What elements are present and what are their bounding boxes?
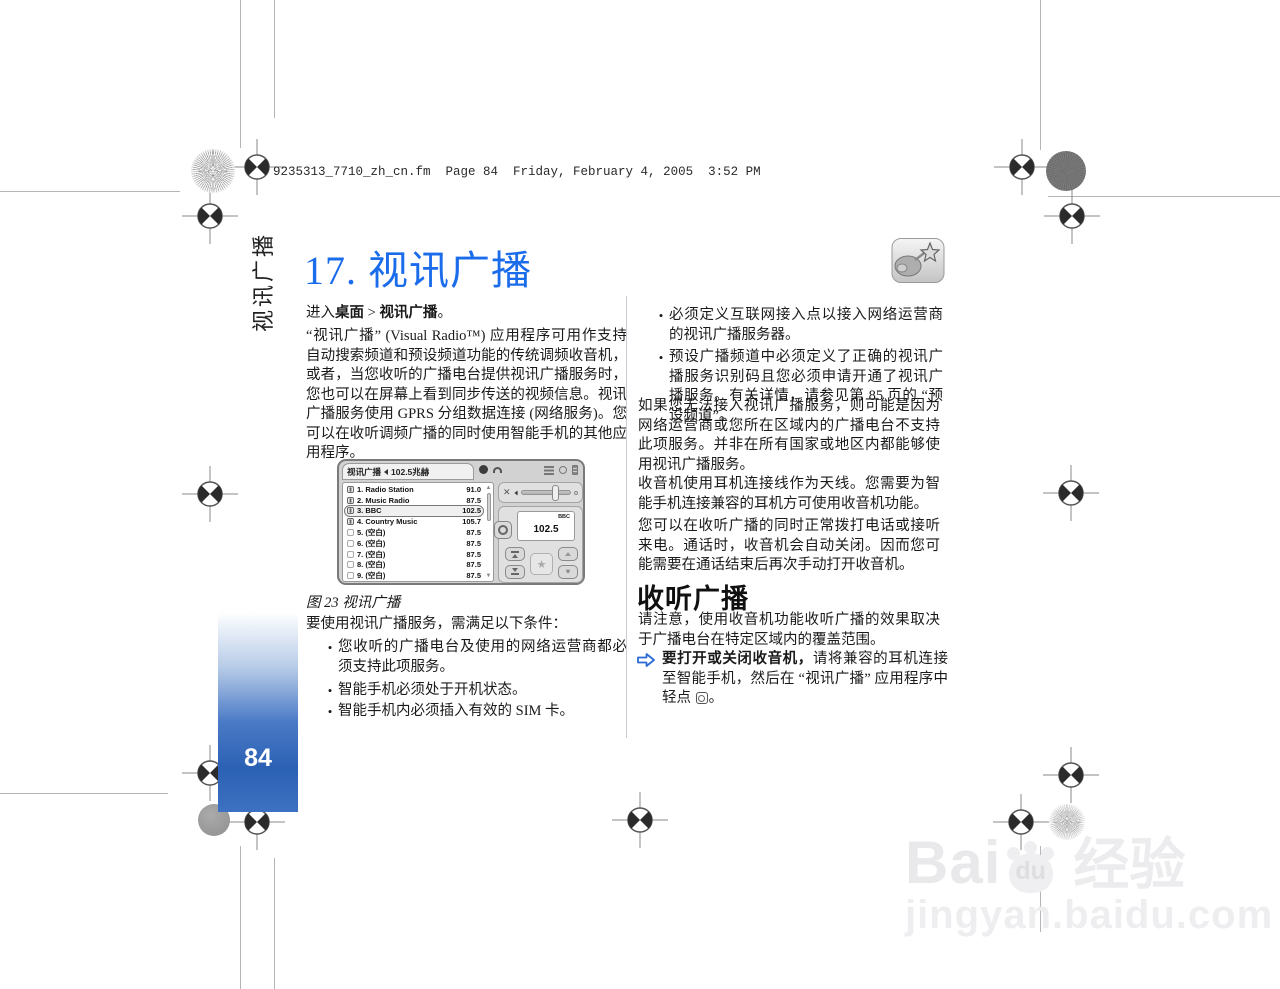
- station-label: 5. (空白): [357, 527, 455, 538]
- left-bullet-2: • 智能手机必须处于开机状态。: [322, 681, 627, 701]
- station-preset-box: [347, 518, 354, 525]
- station-freq: 87.5: [455, 539, 481, 548]
- equalizer-icon: [544, 466, 554, 475]
- station-preset-box: [347, 529, 354, 536]
- station-up-button-icon: [558, 547, 578, 561]
- station-label: 6. (空白): [357, 538, 455, 549]
- intro-prefix: 进入: [306, 305, 335, 321]
- station-row: 6. (空白) 87.5: [345, 538, 483, 549]
- station-label: 4. Country Music: [357, 517, 455, 526]
- station-label: 7. (空白): [357, 549, 455, 560]
- intro-suffix: 。: [437, 305, 452, 321]
- station-freq: 87.5: [455, 550, 481, 559]
- registration-dark-circle: [1046, 151, 1086, 191]
- radio-power-button-icon: [494, 521, 512, 539]
- note-suffix: 。: [709, 690, 724, 706]
- station-row: 1. Radio Station 91.0: [345, 484, 483, 495]
- station-freq: 91.0: [455, 485, 481, 494]
- phone-control-panel: ✕ BBC 102.5 ★: [498, 482, 583, 583]
- sidebar-blue-bar: 84: [218, 612, 298, 812]
- speaker-small-icon: [514, 490, 517, 495]
- crop-line: [0, 191, 180, 192]
- tuner-card: BBC 102.5 ★ ♥: [498, 506, 583, 583]
- intro-line: 进入桌面 > 视讯广播。: [306, 304, 626, 324]
- left-bullet-3: • 智能手机内必须插入有效的 SIM 卡。: [322, 702, 627, 722]
- station-preset-box: [347, 561, 354, 568]
- action-note: 要打开或关闭收音机，请将兼容的耳机连接至智能手机，然后在 “视讯广播” 应用程序…: [636, 650, 948, 709]
- mute-speaker-icon: ✕: [503, 488, 511, 497]
- station-row: 7. (空白) 87.5: [345, 549, 483, 560]
- station-preset-box: [347, 486, 354, 493]
- headphones-icon: [493, 467, 502, 473]
- crop-line: [274, 858, 275, 989]
- station-freq: 87.5: [455, 571, 481, 580]
- baidu-watermark: Bai du 经验: [905, 833, 1185, 893]
- station-row: 4. Country Music 105.7: [345, 516, 483, 527]
- watermark-jingyan-text: 经验: [1073, 837, 1185, 893]
- right-paragraph-3: 您可以在收听广播的同时正常拨打电话或接听来电。通话时，收音机会自动关闭。因而您可…: [638, 517, 940, 576]
- registration-crosshair: [1043, 747, 1099, 803]
- network-icon: [559, 466, 567, 474]
- watermark-baidu-text: Bai: [905, 833, 1001, 893]
- crop-line: [0, 793, 168, 794]
- bullet-marker: •: [322, 702, 338, 722]
- page-number: 84: [218, 744, 298, 773]
- bullet-text: 智能手机内必须插入有效的 SIM 卡。: [338, 702, 574, 722]
- display-frequency: 102.5: [518, 524, 574, 535]
- note-body: 要打开或关闭收音机，请将兼容的耳机连接至智能手机，然后在 “视讯广播” 应用程序…: [662, 650, 948, 709]
- station-row: 8. (空白) 87.5: [345, 560, 483, 571]
- station-row: 2. Music Radio 87.5: [345, 495, 483, 506]
- crop-line: [274, 0, 275, 118]
- volume-track: [521, 490, 571, 495]
- registration-crosshair: [182, 466, 238, 522]
- scroll-down-icon: ▼: [485, 573, 492, 579]
- visual-radio-chapter-icon: [891, 237, 945, 284]
- crop-line: [1040, 0, 1041, 150]
- station-freq: 105.7: [455, 517, 481, 526]
- registration-crosshair: [1044, 188, 1100, 244]
- list-scrollbar: ▲ ▼: [485, 485, 492, 579]
- frequency-display: BBC 102.5: [517, 511, 575, 541]
- station-label: 3. BBC: [357, 506, 455, 515]
- bullet-text: 您收听的广播电台及使用的网络运营商都必须支持此项服务。: [338, 638, 627, 677]
- phone-tab-icons: [479, 465, 502, 474]
- left-paragraph-1: “视讯广播” (Visual Radio™) 应用程序可用作支持自动搜索频道和预…: [306, 327, 627, 464]
- volume-thumb: [552, 485, 559, 501]
- document-header-line: 9235313_7710_zh_cn.fm Page 84 Friday, Fe…: [273, 165, 761, 179]
- station-label: 1. Radio Station: [357, 485, 455, 494]
- station-row: 3. BBC 102.5: [345, 506, 483, 517]
- bullet-marker: •: [322, 638, 338, 677]
- phone-app-title: 视讯广播: [347, 466, 381, 478]
- note-bold-text: 要打开或关闭收音机，: [662, 651, 813, 667]
- station-row: 9. (空白) 87.5: [345, 570, 483, 581]
- station-preset-box: [347, 497, 354, 504]
- bullet-marker: •: [653, 306, 669, 345]
- station-preset-box: [347, 572, 354, 579]
- action-arrow-icon: [636, 650, 662, 709]
- right-paragraph-2: 收音机使用耳机连接线作为天线。您需要为智能手机连接兼容的耳机方可使用收音机功能。: [638, 475, 940, 514]
- registration-crosshair: [994, 139, 1050, 195]
- save-favorite-button-icon: ♥: [558, 565, 578, 579]
- station-freq: 87.5: [455, 560, 481, 569]
- bullet-text: 智能手机必须处于开机状态。: [338, 681, 527, 701]
- scroll-up-icon: ▲: [485, 485, 492, 491]
- chapter-title: 17. 视讯广播: [304, 238, 532, 296]
- speaker-icon: [384, 469, 388, 475]
- visual-radio-star-button-icon: ★: [530, 553, 553, 575]
- baidu-paw-icon: du: [1005, 841, 1057, 893]
- sidebar-chapter-label: 视讯广播: [246, 212, 286, 352]
- scroll-thumb: [487, 493, 491, 521]
- registration-starburst-circle: [191, 149, 235, 193]
- visual-radio-screenshot: 视讯广播 102.5兆赫 1. Radio Station 91.0 2. Mu…: [337, 459, 585, 585]
- bullet-marker: •: [322, 681, 338, 701]
- station-preset-box: [347, 551, 354, 558]
- watermark-url: jingyan.baidu.com: [905, 893, 1273, 938]
- requirements-intro: 要使用视讯广播服务，需满足以下条件：: [306, 615, 627, 635]
- intro-desktop-bold: 桌面: [335, 305, 364, 321]
- seek-up-button-icon: [505, 547, 525, 561]
- station-freq: 87.5: [455, 496, 481, 505]
- battery-icon: [572, 465, 578, 475]
- left-bullet-1: • 您收听的广播电台及使用的网络运营商都必须支持此项服务。: [322, 638, 627, 677]
- station-preset-box: [347, 507, 354, 514]
- phone-tuned-frequency: 102.5兆赫: [391, 466, 429, 478]
- intro-separator: >: [364, 305, 379, 321]
- station-label: 9. (空白): [357, 570, 455, 581]
- display-station-name: BBC: [558, 514, 570, 520]
- phone-status-icons: [544, 465, 578, 475]
- figure-caption: 图 23 视讯广播: [306, 591, 626, 612]
- crop-line: [240, 0, 241, 148]
- station-label: 8. (空白): [357, 559, 455, 570]
- station-row: 5. (空白) 87.5: [345, 527, 483, 538]
- station-list: 1. Radio Station 91.0 2. Music Radio 87.…: [342, 482, 494, 582]
- volume-max-dot: [574, 491, 578, 495]
- station-freq: 87.5: [455, 528, 481, 537]
- right-bullet-1: • 必须定义互联网接入点以接入网络运营商的视讯广播服务器。: [653, 306, 943, 345]
- bullet-text: 必须定义互联网接入点以接入网络运营商的视讯广播服务器。: [669, 306, 943, 345]
- station-preset-box: [347, 540, 354, 547]
- power-button-inline-icon: [696, 692, 708, 704]
- watermark-du-text: du: [1015, 857, 1046, 886]
- station-freq: 102.5: [455, 506, 481, 515]
- antenna-status-icon: [479, 465, 488, 474]
- right-paragraph-1: 如果您无法接入视讯广播服务，则可能是因为网络运营商或您所在区域内的广播电台不支持…: [638, 397, 940, 475]
- registration-crosshair: [1043, 465, 1099, 521]
- station-label: 2. Music Radio: [357, 496, 455, 505]
- right-paragraph-4: 请注意，使用收音机功能收听广播的效果取决于广播电台在特定区域内的覆盖范围。: [638, 611, 940, 650]
- registration-crosshair: [182, 188, 238, 244]
- seek-down-button-icon: [505, 565, 525, 579]
- column-divider: [626, 296, 627, 738]
- crop-line: [240, 846, 241, 989]
- volume-slider: ✕: [498, 482, 583, 503]
- phone-title-tab: 视讯广播 102.5兆赫: [342, 463, 474, 480]
- intro-visualradio-bold: 视讯广播: [379, 305, 437, 321]
- registration-crosshair: [612, 792, 668, 848]
